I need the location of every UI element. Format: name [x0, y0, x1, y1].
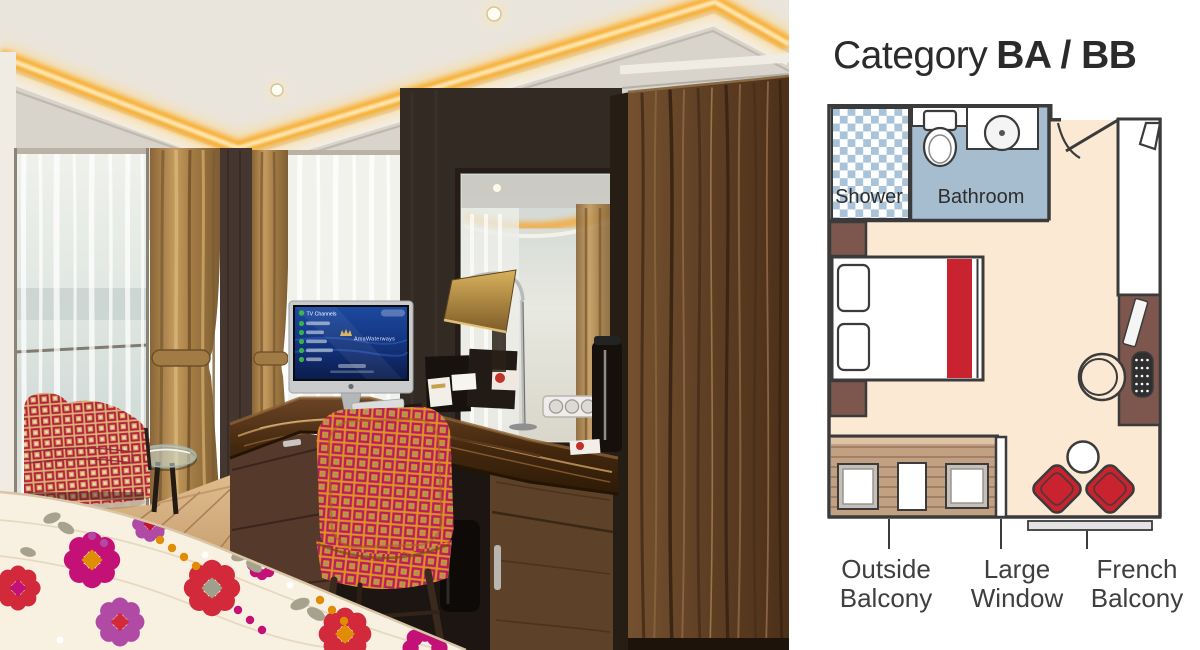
large-window-label: Large: [984, 554, 1051, 584]
nightstand-bottom: [830, 381, 866, 416]
large-window: [996, 437, 1006, 517]
pillow: [838, 324, 869, 370]
deck-chair: [838, 464, 878, 509]
bathroom-label: Bathroom: [938, 186, 1025, 208]
french-balcony-table: [1068, 442, 1099, 473]
stateroom-photo: TV Channels AmaWaterways: [0, 0, 789, 650]
svg-text:Balcony: Balcony: [1091, 583, 1184, 613]
shower-label: Shower: [835, 186, 903, 208]
deck-chair: [946, 464, 988, 508]
wall-column: [0, 52, 16, 530]
wardrobe: [610, 58, 789, 650]
power-outlets: [543, 396, 600, 417]
stool: [1079, 354, 1125, 400]
sink: [967, 107, 1038, 150]
svg-text:Window: Window: [971, 583, 1064, 613]
door-handle: [494, 545, 501, 590]
floorplan-diagram: Shower Bathroom Outside Balcony Large Wi…: [789, 0, 1200, 650]
page: TV Channels AmaWaterways: [0, 0, 1200, 650]
bed-runner: [947, 259, 972, 378]
double-bed: [832, 257, 983, 380]
callout-labels: Outside Balcony Large Window French Balc…: [840, 554, 1184, 613]
outside-balcony-label: Outside: [841, 554, 931, 584]
telephone: [1132, 352, 1153, 397]
pillow: [838, 265, 869, 311]
nightstand-top: [830, 222, 866, 256]
espresso-machine: [592, 336, 622, 452]
svg-text:Balcony: Balcony: [840, 583, 933, 613]
vanity-desk: [1119, 295, 1160, 425]
imac-screen: TV Channels AmaWaterways: [295, 307, 407, 379]
deck-table: [898, 463, 926, 510]
toilet: [924, 111, 956, 166]
french-balcony-label: French: [1097, 554, 1178, 584]
french-balcony-railing: [1028, 521, 1152, 530]
curtain-tieback: [152, 350, 210, 366]
closet: [1118, 119, 1160, 295]
